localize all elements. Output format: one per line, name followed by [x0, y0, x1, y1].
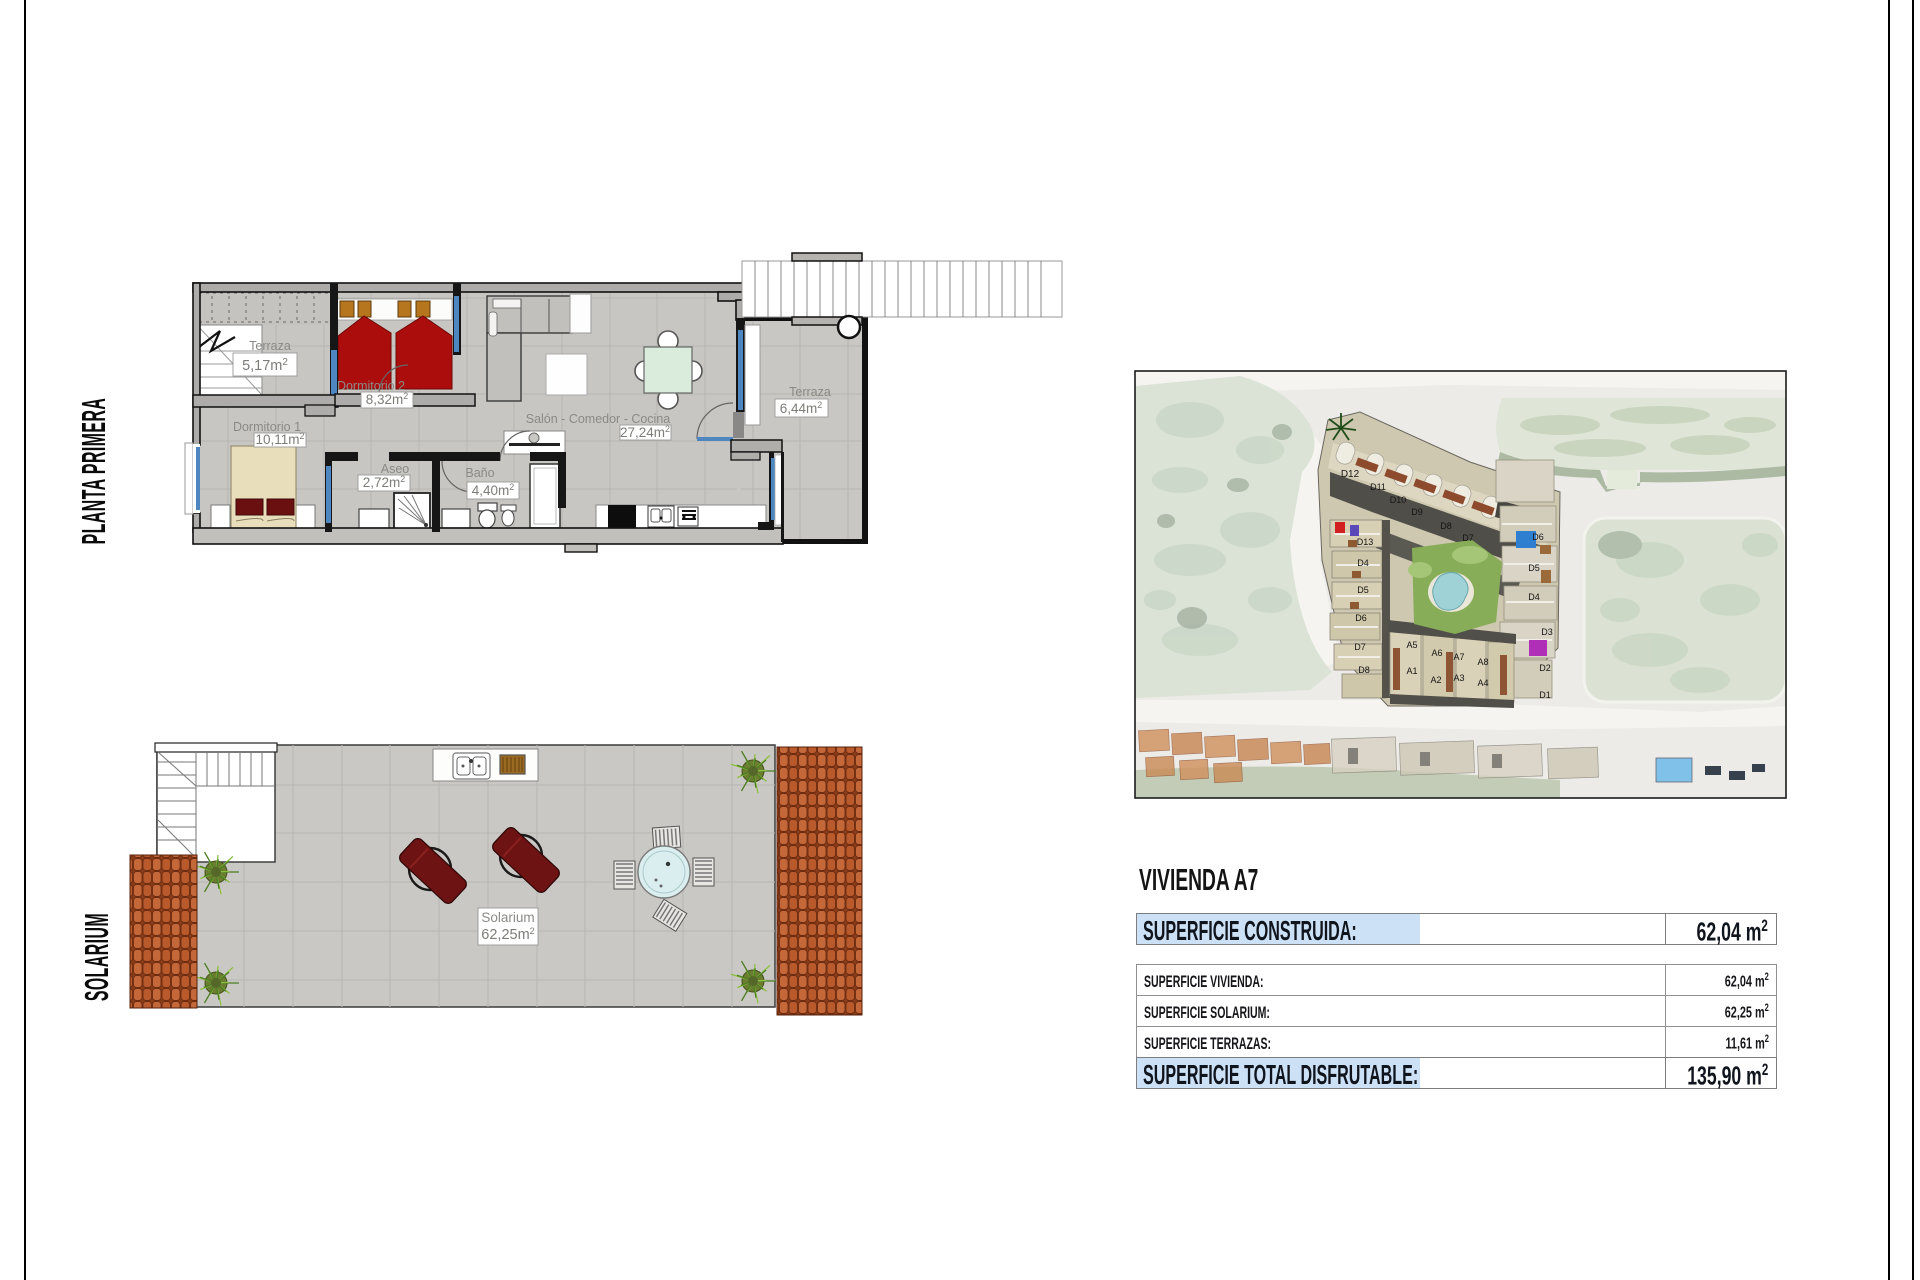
- svg-text:D5: D5: [1528, 563, 1540, 573]
- svg-text:6,44m2: 6,44m2: [780, 400, 823, 416]
- svg-text:D13: D13: [1357, 537, 1374, 547]
- svg-text:D6: D6: [1532, 532, 1544, 542]
- svg-text:D8: D8: [1440, 521, 1452, 531]
- svg-text:A8: A8: [1477, 657, 1488, 667]
- svg-text:D4: D4: [1528, 592, 1540, 602]
- svg-text:10,11m2: 10,11m2: [255, 431, 304, 447]
- svg-text:D7: D7: [1462, 533, 1474, 543]
- svg-text:A1: A1: [1406, 666, 1417, 676]
- svg-text:D10: D10: [1390, 495, 1407, 505]
- svg-text:D9: D9: [1411, 507, 1423, 517]
- svg-text:Solarium: Solarium: [481, 910, 534, 925]
- svg-text:D8: D8: [1358, 665, 1370, 675]
- svg-text:D11: D11: [1370, 482, 1386, 492]
- svg-text:A2: A2: [1430, 675, 1441, 685]
- svg-text:A4: A4: [1477, 678, 1488, 688]
- svg-text:D3: D3: [1541, 627, 1553, 637]
- svg-text:62,25m2: 62,25m2: [481, 926, 534, 943]
- svg-text:8,32m2: 8,32m2: [366, 391, 409, 407]
- svg-text:D2: D2: [1539, 663, 1551, 673]
- svg-text:27,24m2: 27,24m2: [620, 424, 670, 440]
- svg-text:D6: D6: [1355, 613, 1367, 623]
- svg-text:Salón - Comedor - Cocina: Salón - Comedor - Cocina: [526, 412, 671, 426]
- svg-text:Baño: Baño: [465, 466, 494, 480]
- svg-text:D4: D4: [1357, 558, 1369, 568]
- svg-text:Terraza: Terraza: [789, 385, 831, 399]
- svg-text:5,17m2: 5,17m2: [242, 357, 288, 375]
- svg-text:D12: D12: [1341, 469, 1360, 480]
- svg-text:A7: A7: [1453, 652, 1464, 662]
- svg-text:A6: A6: [1431, 648, 1442, 658]
- svg-text:2,72m2: 2,72m2: [363, 474, 406, 490]
- svg-text:Terraza: Terraza: [249, 339, 291, 353]
- svg-text:D7: D7: [1354, 642, 1366, 652]
- svg-text:4,40m2: 4,40m2: [472, 482, 515, 498]
- svg-text:D5: D5: [1357, 585, 1369, 595]
- svg-text:A5: A5: [1406, 640, 1417, 650]
- svg-text:D1: D1: [1539, 690, 1551, 700]
- svg-text:A3: A3: [1453, 673, 1464, 683]
- svg-text:Dormitorio 2: Dormitorio 2: [337, 379, 405, 393]
